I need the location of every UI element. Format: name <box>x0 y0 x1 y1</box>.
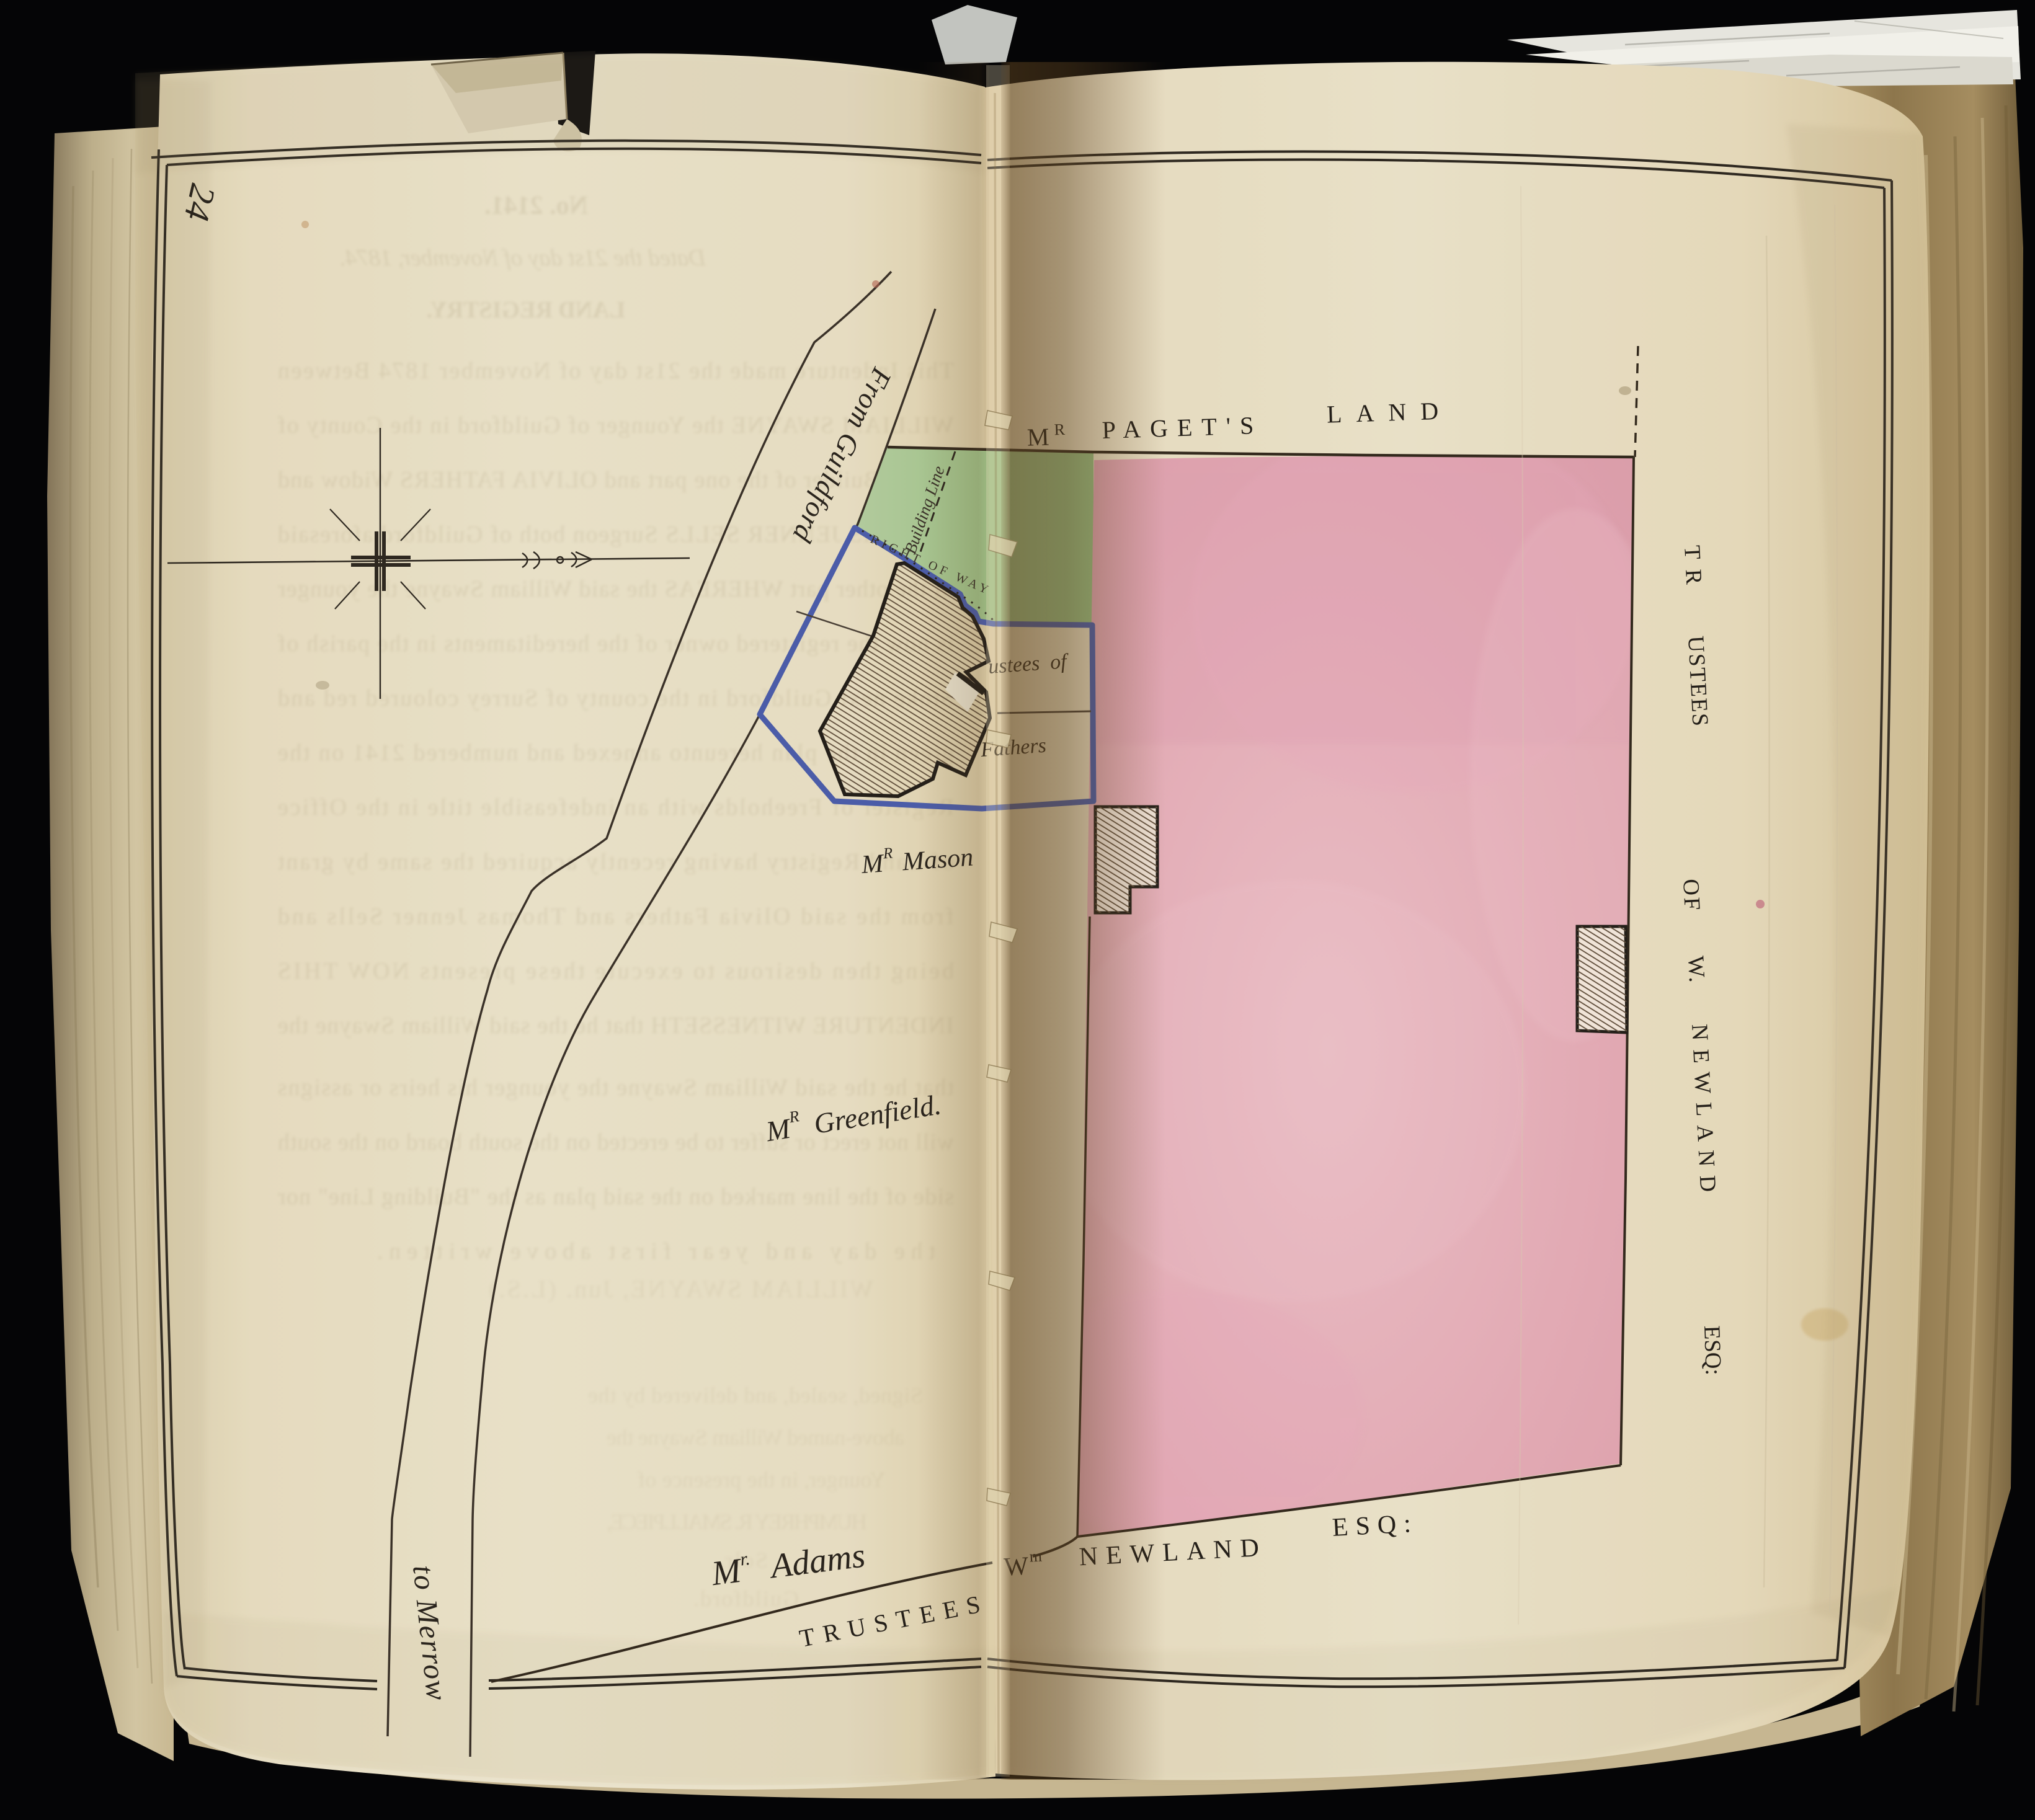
svg-text:No. 2141.: No. 2141. <box>484 192 588 220</box>
svg-text:side of the line marked on the: side of the line marked on the said plan… <box>278 1184 954 1210</box>
svg-text:HUMPHREY R. SMALLPIECE,: HUMPHREY R. SMALLPIECE, <box>607 1509 867 1534</box>
svg-text:LAND REGISTRY.: LAND REGISTRY. <box>427 297 625 323</box>
svg-text:This Indenture made the 21st: This Indenture made the 21st day of Nove… <box>278 358 954 384</box>
svg-text:W.: W. <box>1683 955 1709 984</box>
svg-text:Younger, in the presence of: Younger, in the presence of <box>638 1467 886 1492</box>
svg-text:that he the said William Swayn: that he the said William Swayne the youn… <box>278 1075 954 1101</box>
svg-text:OF: OF <box>1678 878 1705 912</box>
svg-text:WILLIAM SWAYNE, Jun. (L.S.): WILLIAM SWAYNE, Jun. (L.S.) <box>489 1275 873 1303</box>
svg-text:INDENTURE WITNESSETH that he t: INDENTURE WITNESSETH that he the said Wi… <box>278 1013 954 1039</box>
svg-text:TR: TR <box>1679 544 1707 595</box>
svg-text:LAND: LAND <box>1326 396 1453 428</box>
svg-text:Guildford.: Guildford. <box>693 1586 799 1611</box>
svg-text:ESQ:: ESQ: <box>1699 1325 1726 1376</box>
svg-text:above-named William Swayne the: above-named William Swayne the <box>607 1425 904 1450</box>
svg-text:ESQ:: ESQ: <box>1332 1509 1419 1542</box>
svg-text:Signed, sealed, and delivered: Signed, sealed, and delivered by the <box>588 1383 923 1408</box>
svg-text:R: R <box>882 845 893 863</box>
svg-text:Dated the 21st day of November: Dated the 21st day of November, 1874. <box>339 245 706 271</box>
svg-text:USTEES: USTEES <box>1683 635 1713 728</box>
svg-text:is now the registered owner of: is now the registered owner of the hered… <box>278 631 954 657</box>
svg-text:M: M <box>860 850 885 880</box>
svg-text:of the other part WHEREAS the: of the other part WHEREAS the said Willi… <box>278 576 954 602</box>
